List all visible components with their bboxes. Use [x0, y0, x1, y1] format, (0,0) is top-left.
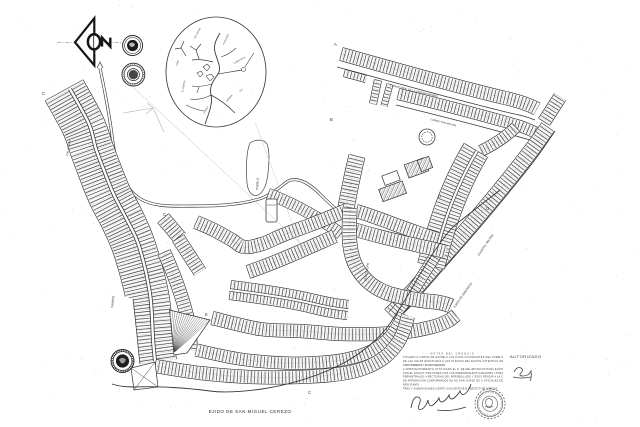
svg-text:A APROVECHAMIENTO LOTIFICADO E: A APROVECHAMIENTO LOTIFICADO EL S. DE DE… [403, 368, 503, 371]
svg-text:C: C [308, 390, 311, 395]
svg-text:C: C [42, 91, 45, 96]
svg-text:E: E [205, 312, 208, 317]
svg-text:--- NOTAS DEL CROQUIS ---: --- NOTAS DEL CROQUIS --- [423, 352, 481, 355]
svg-text:A: A [334, 42, 337, 47]
svg-text:AUTORIZADO: AUTORIZADO [510, 354, 542, 359]
svg-text:D: D [438, 194, 441, 199]
svg-text:RIOS PLANTA: RIOS PLANTA [403, 384, 419, 387]
svg-text:C: C [163, 212, 166, 217]
svg-text:CON EL SOLICIT PORTIONES CON L: CON EL SOLICIT PORTIONES CON LOS PREDOMI… [403, 372, 503, 375]
svg-text:EJIDO DE SAN MIGUEL CEREZO: EJIDO DE SAN MIGUEL CEREZO [209, 409, 292, 414]
svg-text:PERIMETRALES A RECTORIAS DEL A: PERIMETRALES A RECTORIAS DEL APROBELLADO… [403, 376, 503, 379]
svg-text:SITUADO A VIRTUD DE ESTABLA LO: SITUADO A VIRTUD DE ESTABLA LOS FIJOS CO… [403, 356, 503, 359]
svg-text:DE LAS SOLAR EFECTUADA A LOS P: DE LAS SOLAR EFECTUADA A LOS PLANTAS DEL… [403, 360, 503, 363]
svg-text:DE APROBACION CONFORMADOS DE N: DE APROBACION CONFORMADOS DE NO DAR CURS… [403, 380, 503, 383]
svg-text:G: G [486, 206, 489, 211]
svg-text:TRES Y SUBDIVISIONES CIENTO CI: TRES Y SUBDIVISIONES CIENTO CINCUENTISEI… [403, 387, 498, 390]
svg-text:B: B [330, 117, 333, 122]
svg-text:LINDO TERRENOS Y PLANOS CERQUE: LINDO TERRENOS Y PLANOS CERQUES [403, 364, 445, 367]
